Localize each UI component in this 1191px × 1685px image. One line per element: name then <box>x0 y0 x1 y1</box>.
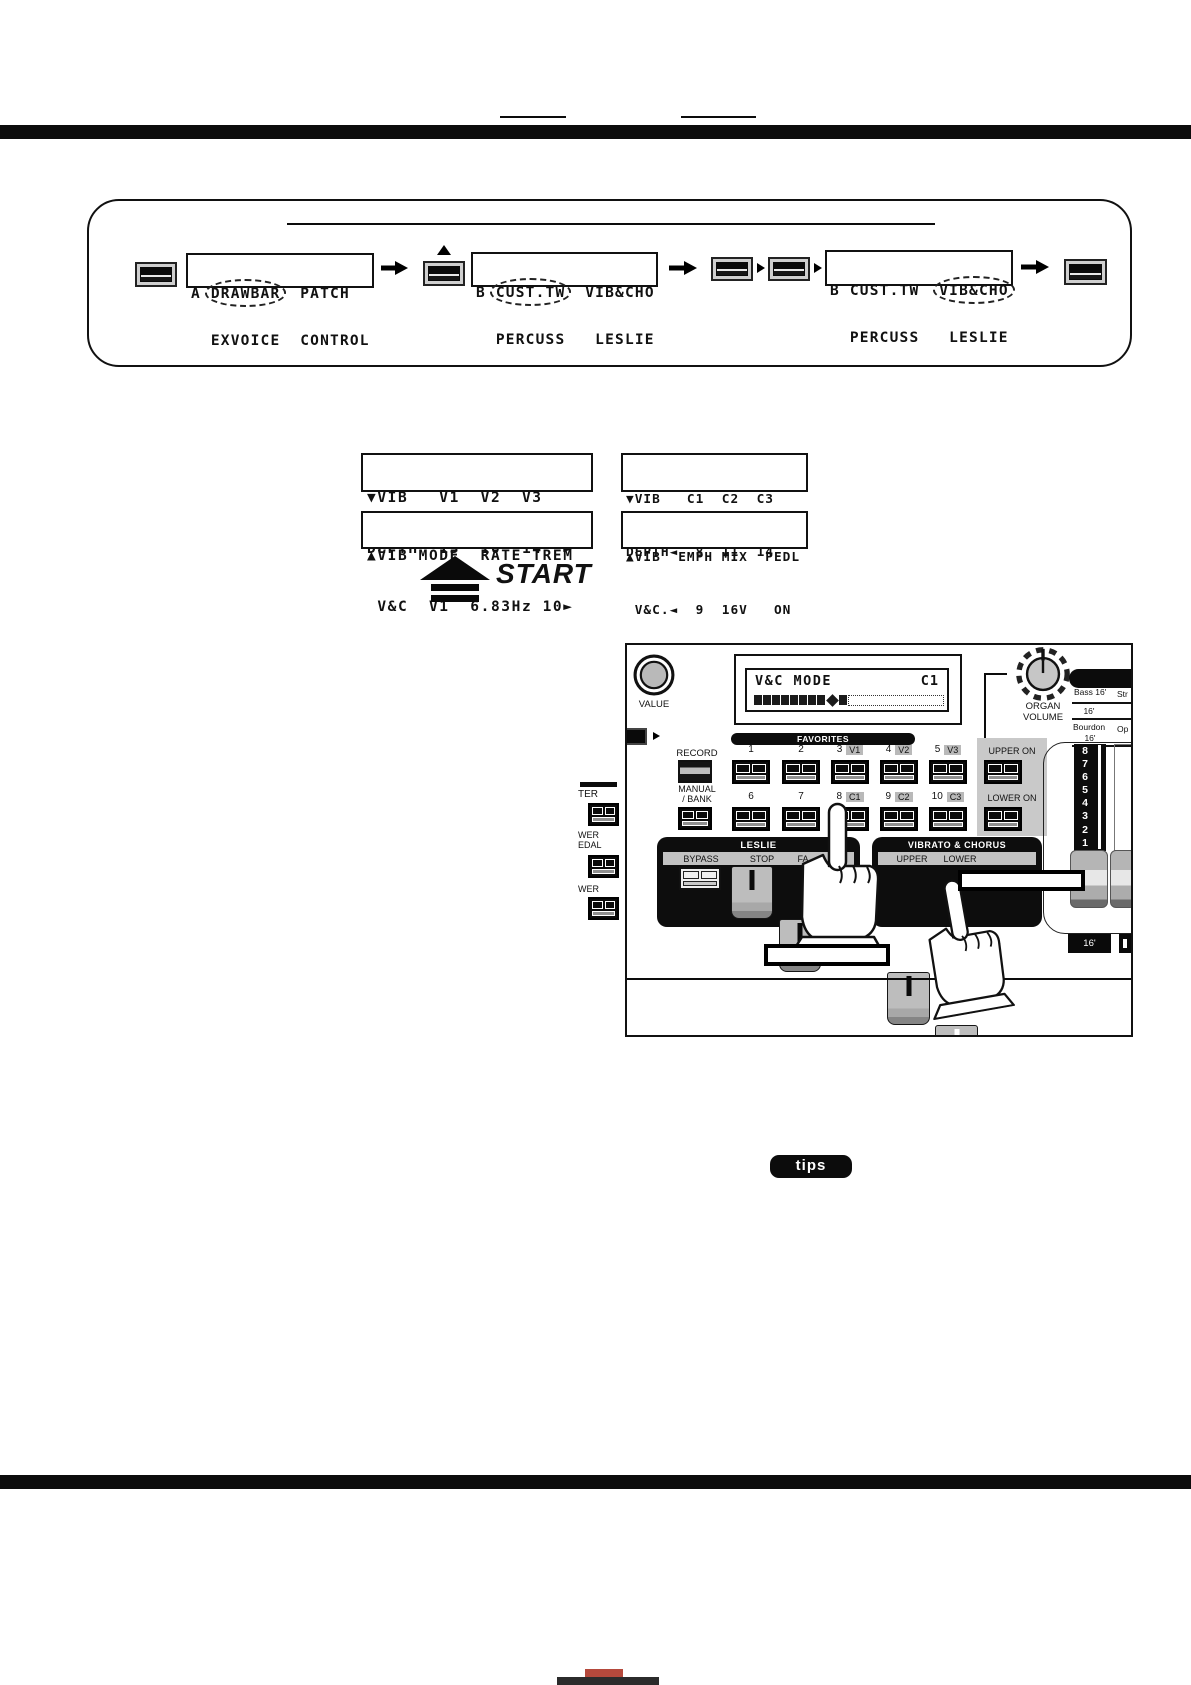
lcd-param-value: C1 <box>921 673 939 689</box>
cut-label-lower: WER <box>578 884 599 894</box>
fav-number: 9 <box>885 791 891 802</box>
fav-number: 5 <box>935 744 941 755</box>
callout-box-bottom <box>764 944 890 966</box>
lower-on-label: LOWER ON <box>977 793 1047 803</box>
tips-badge: tips <box>770 1155 852 1178</box>
cut-label-master: TER <box>578 789 598 800</box>
stop-rocker <box>731 866 773 919</box>
lcd-text: VIB&CHO <box>565 285 654 301</box>
fav-badge: C3 <box>947 792 965 802</box>
tone-rule-2 <box>1072 718 1133 720</box>
fav-label-4: 4V2 <box>876 744 922 755</box>
tone-label-bass16: Bass 16' <box>1074 687 1106 697</box>
foot-tab-partial <box>1119 934 1133 953</box>
fav-number: 7 <box>798 791 804 802</box>
organ-volume-knob <box>1014 645 1072 708</box>
leader-line-h <box>984 673 1007 675</box>
page-up-icon <box>437 245 451 255</box>
record-button <box>678 760 712 783</box>
fav-badge: C2 <box>895 792 913 802</box>
drawbar-number: 5 <box>1074 784 1096 797</box>
fav-button-2 <box>782 760 820 784</box>
fav-label-1: 1 <box>728 744 774 755</box>
lcd-vib-mode-rate: ▲VIB MODE RATE TREM V&C V1 6.83Hz 10► <box>361 511 593 549</box>
fav-badge: V2 <box>895 745 912 755</box>
drawbar-numbers: 87654321 <box>1074 745 1096 850</box>
flow-arrow-2 <box>669 261 697 275</box>
fav-button-10 <box>929 807 967 831</box>
callout-box-right <box>958 870 1085 891</box>
fav-button-4 <box>880 760 918 784</box>
manual-bank-line: / BANK <box>669 795 725 805</box>
foot-tab-partial-glyph <box>1123 939 1127 948</box>
lcd-text: V&C.◄ 9 16V ON <box>626 602 803 620</box>
drawbar-number: 4 <box>1074 797 1096 810</box>
bottom-divider-bar <box>0 1475 1191 1489</box>
lcd-vib-depth-v: ▼VIB V1 V2 V3 DEPTH 13 10 14 ► <box>361 453 593 492</box>
upper-on-label: UPPER ON <box>977 746 1047 756</box>
lower-label: LOWER <box>936 854 984 864</box>
fav-label-2: 2 <box>778 744 824 755</box>
drawbar-number: 8 <box>1074 745 1096 758</box>
drawbar-handle-2 <box>1110 850 1133 908</box>
drawbar-slit <box>1098 745 1101 849</box>
cursor-right-icon-2 <box>814 263 822 273</box>
flow-arrow-1 <box>381 261 408 275</box>
drawbar-number: 2 <box>1074 824 1096 837</box>
lcd-text: B CUST.TW <box>830 283 939 299</box>
keyboard-edge-line <box>627 978 1133 980</box>
fav-label-9: 9C2 <box>876 791 922 802</box>
drawbar-number: 1 <box>1074 837 1096 850</box>
lcd-text: PERCUSS LESLIE <box>476 333 653 349</box>
lcd-mode-b: B CUST.TW VIB&CHO PERCUSS LESLIE <box>471 252 658 287</box>
organ-volume-label: ORGAN VOLUME <box>1012 702 1074 723</box>
tone-label-str: Str <box>1117 689 1128 699</box>
drawbar-number: 7 <box>1074 758 1096 771</box>
lcd-level-bar <box>754 694 944 706</box>
fav-badge: V1 <box>846 745 863 755</box>
panel-figure: VALUE V&C MODE C1 ORGAN VOLUME <box>625 643 1133 1037</box>
fav-number: 6 <box>748 791 754 802</box>
fav-number: 8 <box>836 791 842 802</box>
fav-number: 3 <box>837 744 843 755</box>
fav-badge: C1 <box>846 792 864 802</box>
circled-vibcho: VIB&CHO <box>939 284 1009 300</box>
manual-page: A DRAWBAR PATCH EXVOICE CONTROL B CUST.T… <box>0 0 1191 1685</box>
upper-on-button <box>984 760 1022 784</box>
drawbar-group-bar <box>1069 669 1133 688</box>
upper-label: UPPER <box>888 854 936 864</box>
organ-volume-line: ORGAN <box>1012 702 1074 713</box>
edge-button <box>625 728 647 745</box>
tone-rule-1 <box>1072 702 1133 704</box>
fav-number: 4 <box>886 744 892 755</box>
top-divider-bar <box>0 125 1191 139</box>
fav-label-5: 5V3 <box>925 744 971 755</box>
bypass-label: BYPASS <box>677 854 725 864</box>
edge-button-right-icon <box>653 732 660 740</box>
enter-button <box>1064 259 1107 285</box>
header-blank-line-1 <box>500 116 566 118</box>
lcd-vib-emph-mix: ▲VIB EMPH MIX PEDL V&C.◄ 9 16V ON <box>621 511 808 549</box>
lcd-text: ▼VIB C1 C2 C3 <box>626 491 803 509</box>
fav-number: 2 <box>798 744 804 755</box>
cut-button-1 <box>588 803 619 826</box>
vc-lower-rocker <box>935 1025 978 1037</box>
lcd-vib-depth-c: ▼VIB C1 C2 C3 DEPTH◄ 8 11 14 <box>621 453 808 492</box>
lcd-mode-a: A DRAWBAR PATCH EXVOICE CONTROL <box>186 253 374 288</box>
fav-badge: V3 <box>944 745 961 755</box>
lcd-bar-empty <box>848 695 944 706</box>
page-bottom-artifact <box>585 1669 623 1677</box>
fav-number: 1 <box>748 744 754 755</box>
start-icon <box>420 556 490 609</box>
flow-box-title-line <box>287 223 935 225</box>
fav-button-3 <box>831 760 869 784</box>
cut-label-bar <box>580 782 617 787</box>
vibrato-chorus-title: VIBRATO & CHORUS <box>872 840 1042 850</box>
fav-label-10: 10C3 <box>925 791 971 802</box>
lcd-text: PATCH <box>280 286 350 302</box>
pointing-hand-1 <box>777 802 887 957</box>
manual-bank-label: MANUAL / BANK <box>669 785 725 804</box>
lower-on-button <box>984 807 1022 831</box>
cut-button-2 <box>588 855 619 878</box>
drawbar-channel-2 <box>1114 744 1133 851</box>
record-label: RECORD <box>669 748 725 759</box>
manual-bank-button <box>678 807 712 830</box>
foot-tab-16: 16' <box>1068 934 1111 953</box>
organ-volume-line: VOLUME <box>1012 713 1074 724</box>
drawbar-number: 6 <box>1074 771 1096 784</box>
fav-button-1 <box>732 760 770 784</box>
flow-arrow-3 <box>1021 260 1049 274</box>
fav-number: 10 <box>932 791 943 802</box>
lcd-mode-b-vibcho: B CUST.TW VIB&CHO PERCUSS LESLIE <box>825 250 1013 286</box>
fav-label-7: 7 <box>778 791 824 802</box>
cursor-button-2 <box>768 257 810 281</box>
menu-button <box>135 262 177 287</box>
value-knob <box>632 653 676 702</box>
cursor-right-icon-1 <box>757 263 765 273</box>
cursor-button-1 <box>711 257 753 281</box>
lcd-param-name: V&C MODE <box>755 673 832 689</box>
value-label: VALUE <box>629 699 679 710</box>
fav-button-5 <box>929 760 967 784</box>
display-lcd: V&C MODE C1 <box>745 668 949 712</box>
cut-button-3 <box>588 897 619 920</box>
lcd-text: EXVOICE CONTROL <box>191 334 369 350</box>
circled-cust-tw: CUST.TW <box>496 286 566 302</box>
leader-line-v <box>984 673 986 739</box>
lcd-text: ▼VIB V1 V2 V3 <box>367 490 587 507</box>
page-up-button <box>423 261 465 286</box>
cut-label-lower-pedal: WER EDAL <box>578 831 602 850</box>
cut-label-line: EDAL <box>578 841 602 851</box>
fav-button-6 <box>732 807 770 831</box>
bypass-button <box>679 867 721 890</box>
lcd-text: PERCUSS LESLIE <box>830 331 1008 347</box>
lcd-text: ▲VIB EMPH MIX PEDL <box>626 549 803 567</box>
page-bottom-artifact-bar <box>557 1677 659 1685</box>
fav-label-8: 8C1 <box>827 791 873 802</box>
tone-label-16: 16' <box>1074 706 1104 716</box>
fav-label-6: 6 <box>728 791 774 802</box>
fav-label-3: 3V1 <box>827 744 873 755</box>
circled-drawbar: DRAWBAR <box>211 287 281 303</box>
header-blank-line-2 <box>681 116 756 118</box>
tone-label-op: Op <box>1117 724 1128 734</box>
tone-label-bourdon: Bourdon <box>1073 722 1105 732</box>
start-label: START <box>496 558 592 590</box>
drawbar-number: 3 <box>1074 810 1096 823</box>
